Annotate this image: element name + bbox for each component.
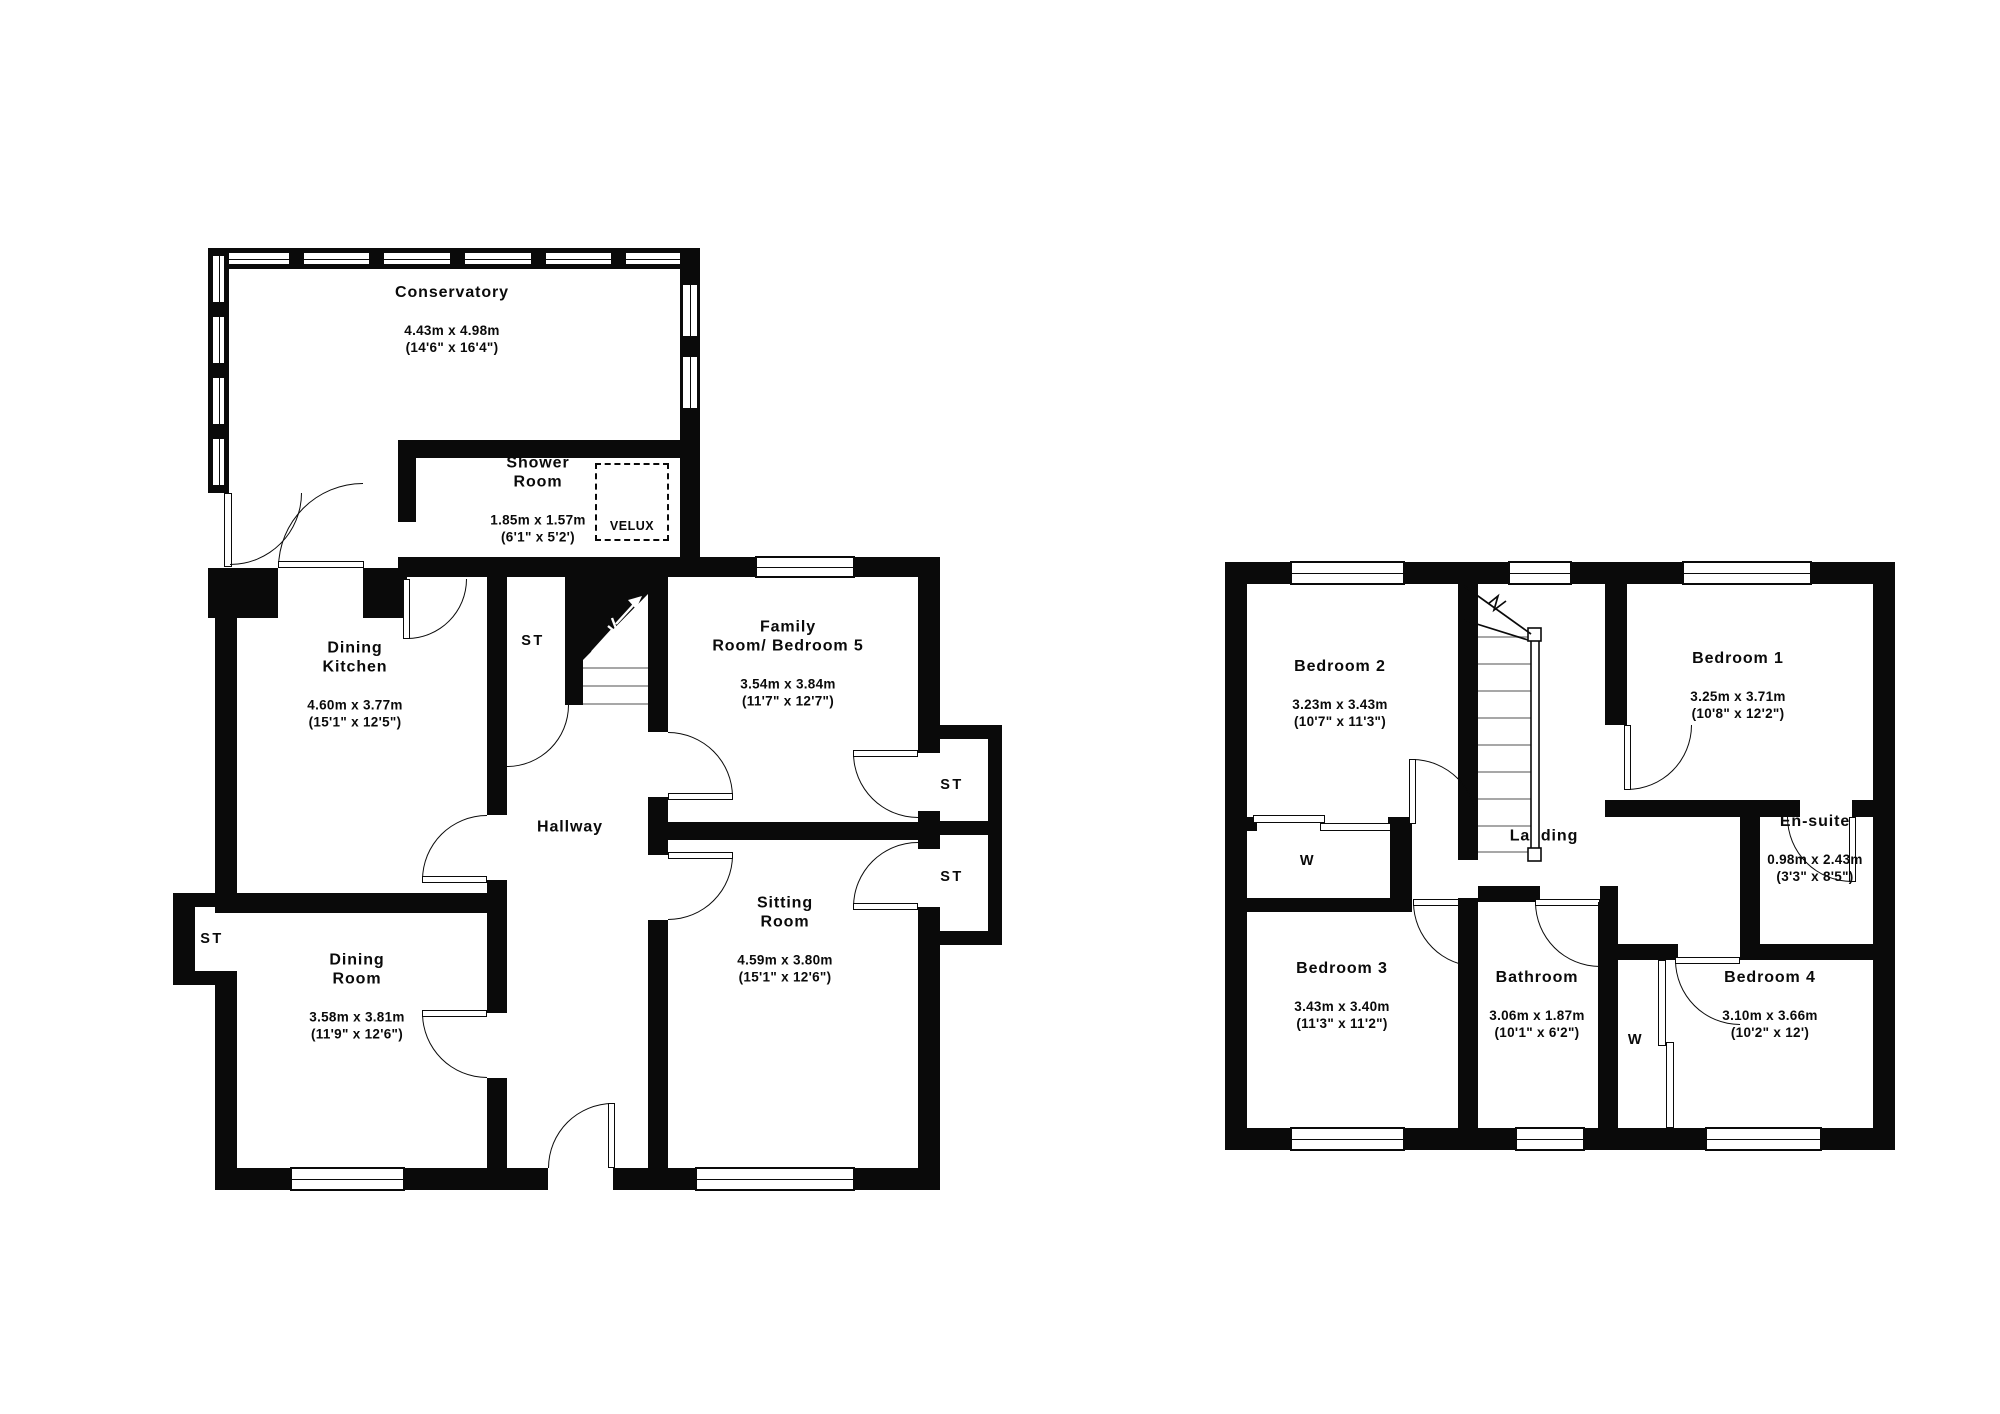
room-name: Bedroom 1 bbox=[1690, 650, 1785, 669]
wall bbox=[487, 577, 507, 815]
wardrobe-label: W bbox=[1628, 1032, 1644, 1048]
sliding-door bbox=[1253, 815, 1325, 823]
wall bbox=[1740, 812, 1760, 960]
sliding-door bbox=[1666, 1042, 1674, 1128]
room-dims: 3.58m x 3.81m (11'9" x 12'6") bbox=[309, 1008, 404, 1043]
door-leaf bbox=[278, 561, 364, 568]
front-door-arc bbox=[548, 1103, 613, 1168]
room-label-shower-room: Shower Room 1.85m x 1.57m (6'1" x 5'2') bbox=[490, 436, 585, 563]
door-leaf bbox=[668, 852, 733, 859]
velux-skylight: VELUX bbox=[595, 463, 669, 541]
wall bbox=[1605, 584, 1627, 725]
room-name: Bedroom 2 bbox=[1292, 658, 1387, 677]
room-dims: 3.23m x 3.43m (10'7" x 11'3") bbox=[1292, 696, 1387, 731]
wall bbox=[648, 577, 668, 732]
window bbox=[212, 377, 225, 425]
room-label-sitting-room: Sitting Room 4.59m x 3.80m (15'1" x 12'6… bbox=[737, 876, 832, 1003]
room-label-family-room: Family Room/ Bedroom 5 3.54m x 3.84m (11… bbox=[712, 600, 863, 727]
room-name: Conservatory bbox=[395, 284, 509, 303]
floorplan-canvas: VELUX ST ST ST bbox=[0, 0, 2000, 1414]
room-label-dining-kitchen: Dining Kitchen 4.60m x 3.77m (15'1" x 12… bbox=[307, 621, 402, 748]
room-label-bedroom-1: Bedroom 1 3.25m x 3.71m (10'8" x 12'2") bbox=[1690, 632, 1785, 740]
door-leaf bbox=[1409, 759, 1416, 824]
wall bbox=[918, 907, 940, 1190]
window bbox=[383, 252, 451, 265]
stair-void bbox=[583, 577, 648, 660]
room-name: Shower Room bbox=[490, 454, 585, 492]
room-label-bedroom-3: Bedroom 3 3.43m x 3.40m (11'3" x 11'2") bbox=[1294, 942, 1389, 1050]
door-arc bbox=[853, 753, 918, 818]
room-dims: 4.43m x 4.98m (14'6" x 16'4") bbox=[395, 322, 509, 357]
room-dims: 0.98m x 2.43m (3'3" x 8'5") bbox=[1767, 851, 1862, 886]
window bbox=[212, 438, 225, 486]
wall bbox=[398, 557, 940, 577]
room-name: Dining Room bbox=[309, 951, 404, 989]
wall bbox=[1478, 886, 1540, 902]
room-name: Hallway bbox=[537, 819, 603, 838]
conservatory-left-windows bbox=[208, 248, 229, 493]
wall bbox=[173, 971, 237, 985]
room-dims: 3.10m x 3.66m (10'2" x 12') bbox=[1722, 1007, 1817, 1042]
wardrobe-label: W bbox=[1300, 853, 1316, 869]
door-leaf bbox=[608, 1103, 615, 1168]
room-label-conservatory: Conservatory 4.43m x 4.98m (14'6" x 16'4… bbox=[395, 266, 509, 374]
door-arc bbox=[1627, 725, 1692, 790]
door-leaf bbox=[1624, 725, 1631, 790]
window bbox=[681, 355, 699, 410]
sliding-door bbox=[1320, 823, 1392, 831]
room-dims: 3.54m x 3.84m (11'7" x 12'7") bbox=[712, 675, 863, 710]
door-arc bbox=[422, 1013, 487, 1078]
sliding-door bbox=[1658, 960, 1666, 1046]
wall bbox=[1598, 902, 1618, 1128]
wall bbox=[648, 920, 668, 1170]
room-name: Bathroom bbox=[1489, 969, 1584, 988]
room-name: Sitting Room bbox=[737, 894, 832, 932]
room-label-bedroom-4: Bedroom 4 3.10m x 3.66m (10'2" x 12') bbox=[1722, 951, 1817, 1059]
room-dims: 1.85m x 1.57m (6'1" x 5'2') bbox=[490, 511, 585, 546]
room-label-bathroom: Bathroom 3.06m x 1.87m (10'1" x 6'2") bbox=[1489, 951, 1584, 1059]
door-leaf bbox=[422, 1010, 487, 1017]
wall bbox=[1247, 898, 1412, 912]
door-leaf bbox=[1535, 899, 1600, 906]
window bbox=[303, 252, 371, 265]
room-name: Landing bbox=[1510, 828, 1579, 847]
room-label-bedroom-2: Bedroom 2 3.23m x 3.43m (10'7" x 11'3") bbox=[1292, 640, 1387, 748]
window bbox=[695, 1167, 855, 1191]
storage-label: ST bbox=[940, 777, 964, 793]
wall bbox=[918, 931, 1002, 945]
window bbox=[1290, 561, 1405, 585]
window bbox=[1682, 561, 1812, 585]
wall bbox=[988, 725, 1002, 945]
door-leaf bbox=[668, 793, 733, 800]
door-leaf bbox=[422, 876, 487, 883]
door-leaf bbox=[853, 903, 918, 910]
room-name: Bedroom 3 bbox=[1294, 960, 1389, 979]
wall bbox=[648, 822, 940, 840]
window bbox=[222, 252, 290, 265]
room-label-hallway: Hallway bbox=[537, 801, 603, 856]
window bbox=[464, 252, 532, 265]
wall bbox=[215, 568, 237, 1190]
room-dims: 4.59m x 3.80m (15'1" x 12'6") bbox=[737, 951, 832, 986]
door-arc bbox=[407, 579, 467, 639]
door-arc bbox=[668, 732, 733, 797]
wall bbox=[487, 1078, 507, 1170]
wall bbox=[215, 893, 507, 913]
window bbox=[1508, 561, 1572, 585]
storage-label: ST bbox=[521, 633, 545, 649]
front-door-opening bbox=[548, 1168, 613, 1190]
storage-label: ST bbox=[940, 869, 964, 885]
wall bbox=[398, 440, 416, 522]
window bbox=[290, 1167, 405, 1191]
room-name: Bedroom 4 bbox=[1722, 969, 1817, 988]
wall bbox=[1600, 886, 1618, 902]
door-leaf bbox=[403, 579, 410, 639]
room-name: En-suite bbox=[1767, 813, 1862, 832]
window bbox=[212, 316, 225, 364]
window bbox=[1705, 1127, 1822, 1151]
wall bbox=[565, 577, 583, 705]
room-name: Family Room/ Bedroom 5 bbox=[712, 618, 863, 656]
door-arc bbox=[853, 842, 918, 907]
window bbox=[681, 283, 699, 338]
window bbox=[212, 255, 225, 303]
room-label-landing: Landing bbox=[1510, 810, 1579, 865]
window bbox=[545, 252, 613, 265]
room-name: Dining Kitchen bbox=[307, 639, 402, 677]
wall bbox=[1873, 562, 1895, 1150]
room-dims: 4.60m x 3.77m (15'1" x 12'5") bbox=[307, 696, 402, 731]
room-dims: 3.25m x 3.71m (10'8" x 12'2") bbox=[1690, 688, 1785, 723]
storage-label: ST bbox=[200, 931, 224, 947]
door-arc bbox=[668, 855, 733, 920]
window bbox=[1290, 1127, 1405, 1151]
wall bbox=[1225, 562, 1247, 1150]
wall bbox=[1598, 944, 1678, 960]
window bbox=[1515, 1127, 1585, 1151]
room-label-en-suite: En-suite 0.98m x 2.43m (3'3" x 8'5") bbox=[1767, 795, 1862, 903]
door-leaf bbox=[853, 750, 918, 757]
window bbox=[755, 556, 855, 578]
room-dims: 3.43m x 3.40m (11'3" x 11'2") bbox=[1294, 998, 1389, 1033]
room-dims: 3.06m x 1.87m (10'1" x 6'2") bbox=[1489, 1007, 1584, 1042]
wall bbox=[1458, 898, 1478, 1128]
door-arc bbox=[422, 815, 487, 880]
velux-label: VELUX bbox=[610, 519, 654, 533]
room-label-dining-room: Dining Room 3.58m x 3.81m (11'9" x 12'6"… bbox=[309, 933, 404, 1060]
door-arc bbox=[507, 705, 569, 767]
